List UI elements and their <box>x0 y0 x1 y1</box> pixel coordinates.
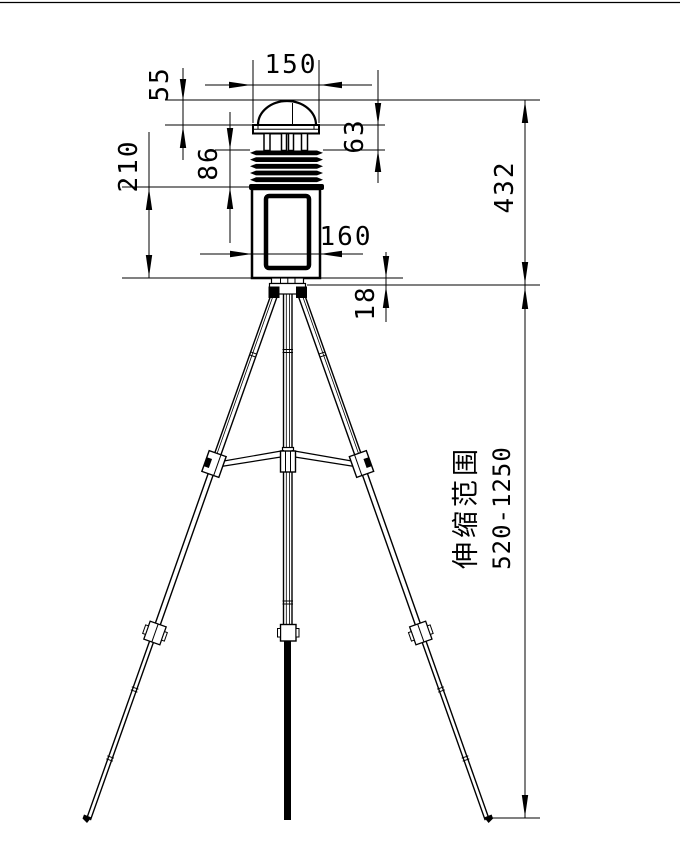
column-clamp-lower <box>278 625 300 642</box>
radiation-shield-louvers <box>249 151 324 191</box>
leg-clamp-left-upper <box>202 451 226 478</box>
leg-foot-right <box>484 815 493 824</box>
sensor-dome <box>258 101 316 125</box>
dim-label-body-height: 210 <box>114 140 144 193</box>
dim-label-dome-height: 55 <box>145 66 175 101</box>
dim-label-head-height: 63 <box>340 118 370 153</box>
leg-foot-left <box>83 815 92 824</box>
weather-station-instrument <box>249 101 324 298</box>
support-posts <box>264 134 308 151</box>
center-column-rod <box>284 641 291 820</box>
dome-base-plate <box>253 125 319 134</box>
dim-label-telescopic-range: 520-1250 <box>488 446 516 570</box>
dimension-lines <box>122 60 540 818</box>
dim-label-instrument-height: 432 <box>490 161 520 214</box>
leg-clamp-right-lower <box>407 620 435 646</box>
dim-label-mount-gap: 18 <box>351 285 381 320</box>
dim-label-telescopic-caption: 伸缩范围 <box>451 445 481 569</box>
drawing-canvas: 150 55 63 86 210 160 18 432 伸缩范围 520-125… <box>0 0 680 864</box>
display-window <box>266 196 309 268</box>
mount-plate <box>272 278 304 284</box>
tripod <box>83 292 494 823</box>
leg-clamp-left-lower <box>141 620 169 646</box>
tripod-head-collar <box>269 284 308 299</box>
dim-label-top-width: 150 <box>265 50 318 80</box>
leg-clamp-right-upper <box>349 451 373 478</box>
technical-drawing: 150 55 63 86 210 160 18 432 伸缩范围 520-125… <box>0 0 680 864</box>
column-brace-hub <box>281 451 296 472</box>
dim-label-shield-height: 86 <box>194 145 224 180</box>
tripod-leg-left <box>83 292 279 823</box>
dim-label-body-width: 160 <box>320 222 373 252</box>
